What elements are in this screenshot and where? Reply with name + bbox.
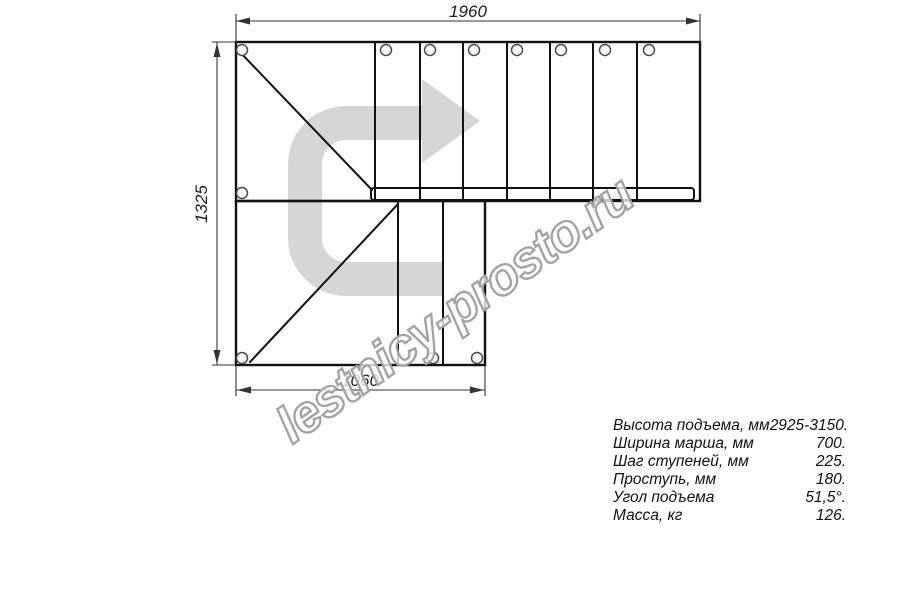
spec-row: Угол подъема 51,5°. [613, 489, 846, 507]
dim-arrowhead [686, 18, 700, 25]
spec-row: Ширина марша, мм 700. [613, 435, 846, 453]
spec-row: Шаг ступеней, мм 225. [613, 453, 846, 471]
dimension-overall-depth: 1325 [192, 42, 237, 365]
hole-circle [425, 45, 436, 56]
spec-label: Ширина марша, мм [613, 435, 754, 453]
hole-circle [512, 45, 523, 56]
hole-circle [237, 45, 248, 56]
hole-circle [472, 353, 483, 364]
spec-label: Угол подъема [613, 489, 714, 507]
site-watermark: lestnicy-prosto.ru [266, 165, 644, 454]
overall-depth-label: 1325 [192, 185, 211, 223]
dim-arrowhead [470, 387, 484, 394]
dim-arrowhead [214, 43, 221, 57]
spec-value: 225. [816, 453, 846, 471]
hole-circle [556, 45, 567, 56]
spec-row: Проступь, мм 180. [613, 471, 846, 489]
spec-label: Проступь, мм [613, 471, 716, 489]
dim-arrowhead [237, 387, 251, 394]
overall-width-label: 1960 [449, 2, 487, 21]
hole-circle [237, 188, 248, 199]
dim-arrowhead [236, 18, 250, 25]
hole-circle [600, 45, 611, 56]
spec-value: 51,5°. [805, 489, 846, 507]
dimension-overall-width: 1960 [236, 2, 700, 42]
spec-row: Масса, кг 126. [613, 507, 846, 525]
dim-arrowhead [214, 350, 221, 364]
hole-circle [469, 45, 480, 56]
spec-label: Масса, кг [613, 507, 682, 525]
staircase-drawing-page: { "drawing": { "type": "staircase-floor-… [0, 0, 900, 600]
spec-value: 700. [816, 435, 846, 453]
hole-circle [237, 353, 248, 364]
spec-row: Высота подъема, мм 2925-3150. [613, 417, 846, 435]
spec-label: Высота подъема, мм [613, 417, 770, 435]
spec-value: 2925-3150. [770, 417, 848, 435]
hole-circle [381, 45, 392, 56]
spec-value: 180. [816, 471, 846, 489]
hole-circle [644, 45, 655, 56]
spec-value: 126. [816, 507, 846, 525]
spec-table: Высота подъема, мм 2925-3150. Ширина мар… [613, 417, 846, 525]
spec-label: Шаг ступеней, мм [613, 453, 749, 471]
